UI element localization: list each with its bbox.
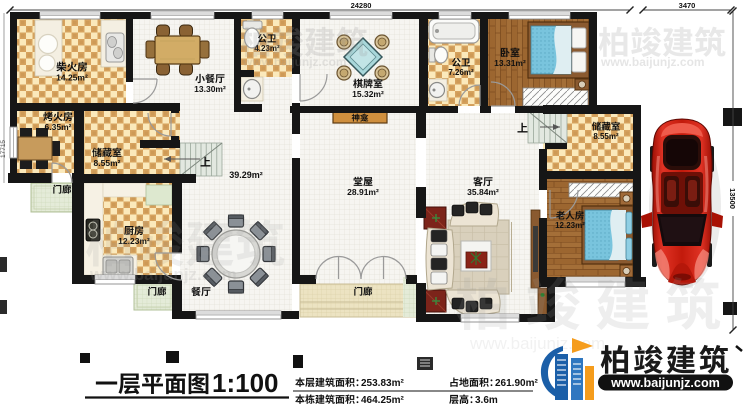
svg-text:15.32m²: 15.32m² xyxy=(352,89,384,99)
svg-text:www.baijunjz.com: www.baijunjz.com xyxy=(89,265,237,284)
svg-text:www.baijunjz.com: www.baijunjz.com xyxy=(610,376,720,390)
svg-text:253.83m²: 253.83m² xyxy=(361,378,404,389)
svg-text:7.26m²: 7.26m² xyxy=(448,68,474,77)
svg-text:35.84m²: 35.84m² xyxy=(467,187,499,197)
svg-text:464.25m²: 464.25m² xyxy=(361,395,404,406)
svg-text:8.55m²: 8.55m² xyxy=(593,132,619,141)
svg-text:261.90m²: 261.90m² xyxy=(495,378,538,389)
svg-text:www.baijunjz.com: www.baijunjz.com xyxy=(600,55,705,69)
svg-text:13.30m²: 13.30m² xyxy=(194,84,226,94)
svg-text:13.31m²: 13.31m² xyxy=(494,58,526,68)
svg-text:14.25m²: 14.25m² xyxy=(56,73,88,83)
svg-text:6.35m²: 6.35m² xyxy=(45,122,72,132)
svg-text:28.91m²: 28.91m² xyxy=(347,187,379,197)
svg-text:13500: 13500 xyxy=(728,188,737,209)
svg-text:www.baijunjz.com: www.baijunjz.com xyxy=(242,55,347,69)
svg-text:8.55m²: 8.55m² xyxy=(94,158,121,168)
svg-text:3470: 3470 xyxy=(679,1,696,10)
svg-text:1:100: 1:100 xyxy=(212,368,279,398)
svg-text:3.6m: 3.6m xyxy=(475,395,498,406)
svg-text:39.29m²: 39.29m² xyxy=(229,170,263,180)
svg-text:12.23m²: 12.23m² xyxy=(555,221,585,230)
svg-text:17715: 17715 xyxy=(0,140,7,158)
svg-text:24280: 24280 xyxy=(351,1,372,10)
